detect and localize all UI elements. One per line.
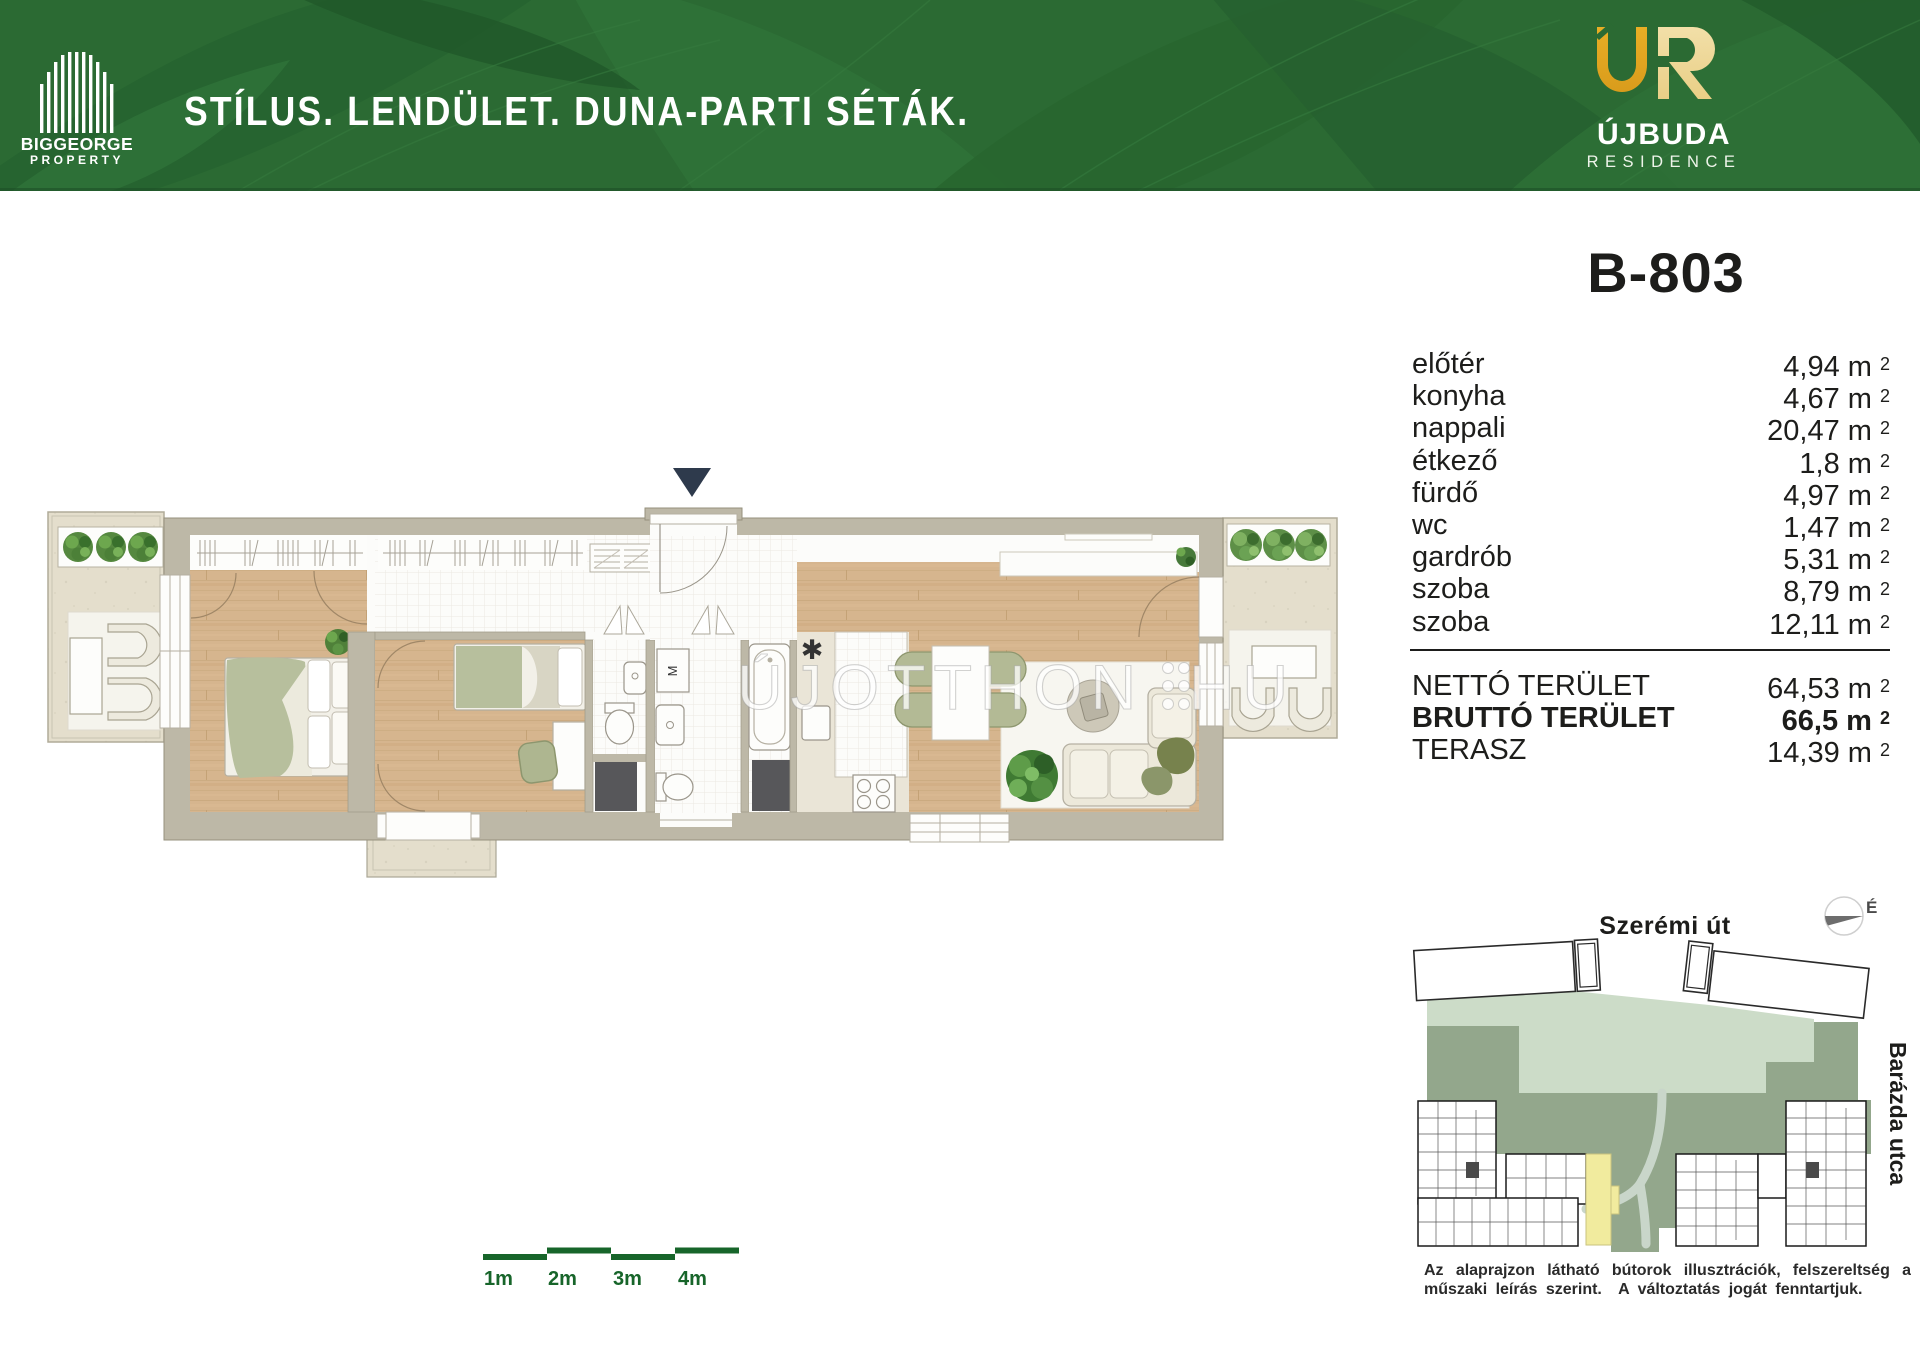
svg-text:M: M [665, 666, 680, 677]
